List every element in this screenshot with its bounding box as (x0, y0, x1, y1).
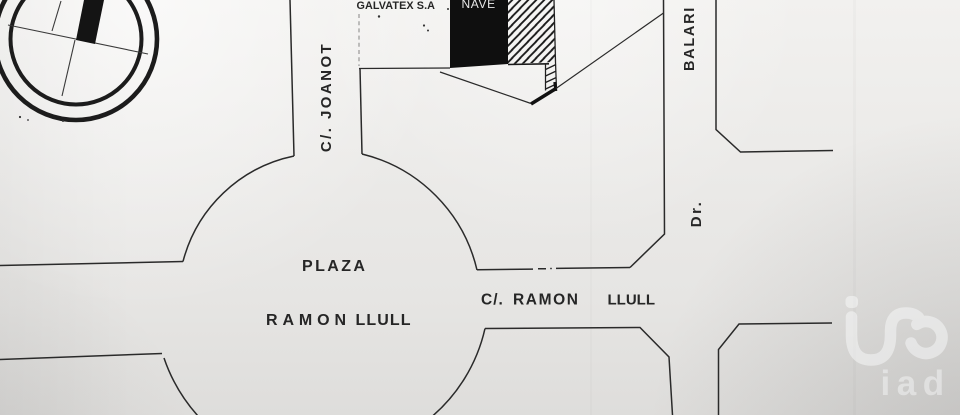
svg-text:NAVE: NAVE (462, 0, 496, 11)
svg-text:RAMON: RAMON (513, 292, 580, 309)
svg-text:iad: iad (881, 364, 951, 403)
svg-text:LLULL: LLULL (608, 292, 655, 309)
svg-text:LLULL: LLULL (356, 312, 412, 329)
svg-text:C/. JOANOT: C/. JOANOT (318, 42, 335, 152)
svg-text:Dr.: Dr. (688, 200, 705, 228)
svg-text:RAMON: RAMON (266, 312, 351, 329)
svg-text:BALARI: BALARI (682, 6, 698, 71)
svg-text:PLAZA: PLAZA (302, 258, 367, 275)
svg-text:C/.: C/. (481, 292, 504, 309)
svg-text:GALVATEX S.A: GALVATEX S.A (357, 0, 436, 12)
